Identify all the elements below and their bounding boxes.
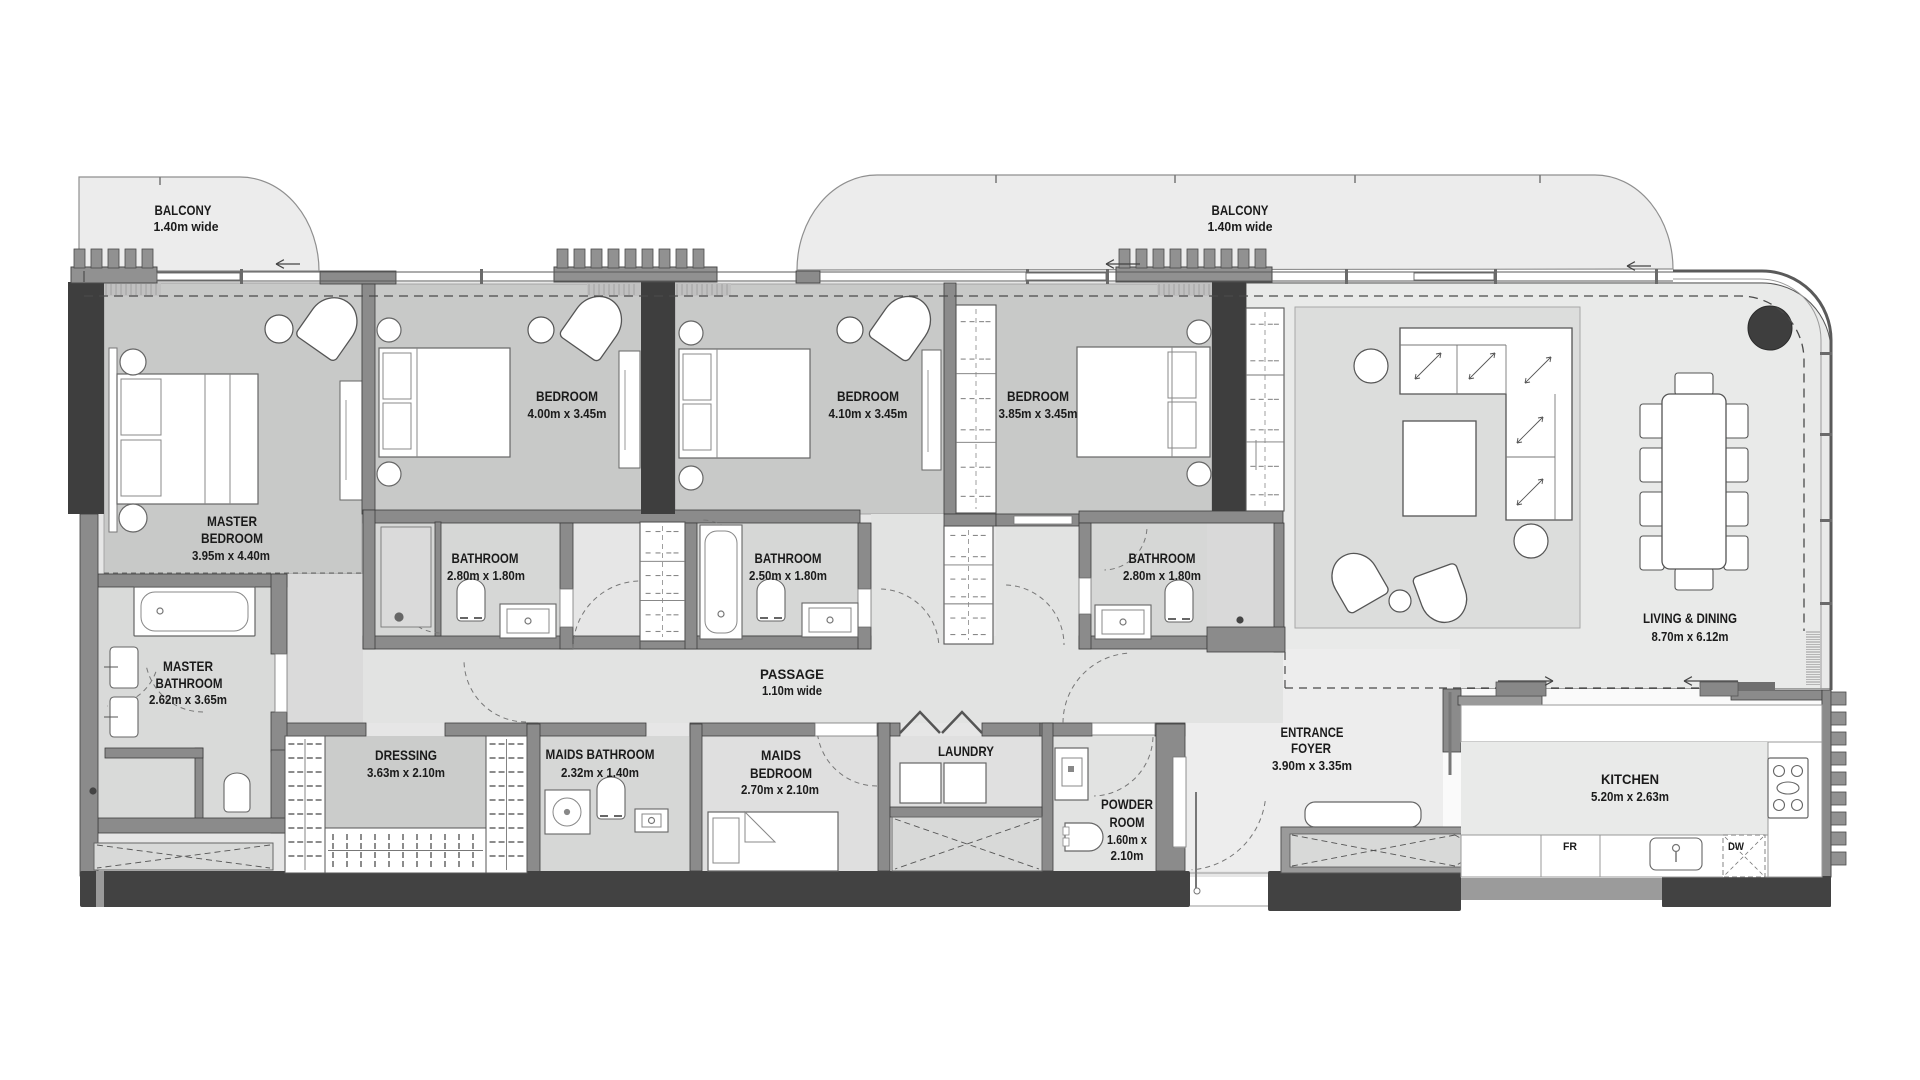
svg-text:1.40m wide: 1.40m wide	[154, 219, 219, 234]
svg-text:ENTRANCE: ENTRANCE	[1281, 724, 1344, 740]
svg-text:BEDROOM: BEDROOM	[1007, 388, 1069, 404]
svg-text:1.40m wide: 1.40m wide	[1208, 219, 1273, 234]
svg-text:3.63m x 2.10m: 3.63m x 2.10m	[367, 765, 445, 780]
svg-text:BATHROOM: BATHROOM	[156, 676, 223, 691]
svg-text:MAIDS: MAIDS	[761, 747, 801, 763]
svg-text:PASSAGE: PASSAGE	[760, 666, 824, 682]
svg-text:BEDROOM: BEDROOM	[201, 530, 263, 546]
svg-text:BATHROOM: BATHROOM	[452, 551, 519, 566]
svg-text:ROOM: ROOM	[1110, 815, 1145, 830]
svg-text:DRESSING: DRESSING	[375, 747, 437, 763]
svg-text:FR: FR	[1563, 841, 1577, 853]
svg-text:BALCONY: BALCONY	[1212, 202, 1270, 218]
svg-text:1.60m x: 1.60m x	[1107, 832, 1148, 847]
svg-text:2.50m x 1.80m: 2.50m x 1.80m	[749, 568, 827, 583]
svg-text:BEDROOM: BEDROOM	[750, 765, 812, 781]
svg-text:2.62m x 3.65m: 2.62m x 3.65m	[149, 692, 227, 707]
svg-text:DW: DW	[1728, 841, 1745, 853]
svg-text:2.10m: 2.10m	[1111, 848, 1144, 863]
svg-text:1.10m wide: 1.10m wide	[762, 683, 822, 698]
svg-text:KITCHEN: KITCHEN	[1601, 771, 1659, 787]
svg-text:2.32m x 1.40m: 2.32m x 1.40m	[561, 765, 639, 780]
svg-text:MASTER: MASTER	[207, 513, 257, 529]
svg-text:MAIDS BATHROOM: MAIDS BATHROOM	[546, 747, 655, 762]
svg-text:4.00m x 3.45m: 4.00m x 3.45m	[528, 406, 607, 421]
svg-text:2.80m x 1.80m: 2.80m x 1.80m	[1123, 568, 1201, 583]
svg-text:BATHROOM: BATHROOM	[1129, 551, 1196, 566]
svg-text:3.85m x 3.45m: 3.85m x 3.45m	[999, 406, 1078, 421]
svg-text:POWDER: POWDER	[1101, 797, 1153, 812]
svg-text:BEDROOM: BEDROOM	[837, 388, 899, 404]
svg-text:8.70m x 6.12m: 8.70m x 6.12m	[1652, 629, 1729, 644]
svg-text:2.80m x 1.80m: 2.80m x 1.80m	[447, 568, 525, 583]
svg-text:BALCONY: BALCONY	[155, 202, 213, 218]
svg-text:BEDROOM: BEDROOM	[536, 388, 598, 404]
svg-text:BATHROOM: BATHROOM	[755, 551, 822, 566]
svg-text:MASTER: MASTER	[163, 658, 213, 674]
svg-text:3.95m x 4.40m: 3.95m x 4.40m	[192, 548, 270, 563]
svg-text:LIVING & DINING: LIVING & DINING	[1643, 610, 1737, 626]
svg-text:FOYER: FOYER	[1291, 740, 1331, 756]
svg-text:2.70m x 2.10m: 2.70m x 2.10m	[741, 782, 819, 797]
svg-text:5.20m x 2.63m: 5.20m x 2.63m	[1591, 789, 1669, 804]
svg-text:4.10m x 3.45m: 4.10m x 3.45m	[829, 406, 908, 421]
svg-text:3.90m x 3.35m: 3.90m x 3.35m	[1272, 758, 1352, 773]
svg-text:LAUNDRY: LAUNDRY	[938, 743, 995, 759]
